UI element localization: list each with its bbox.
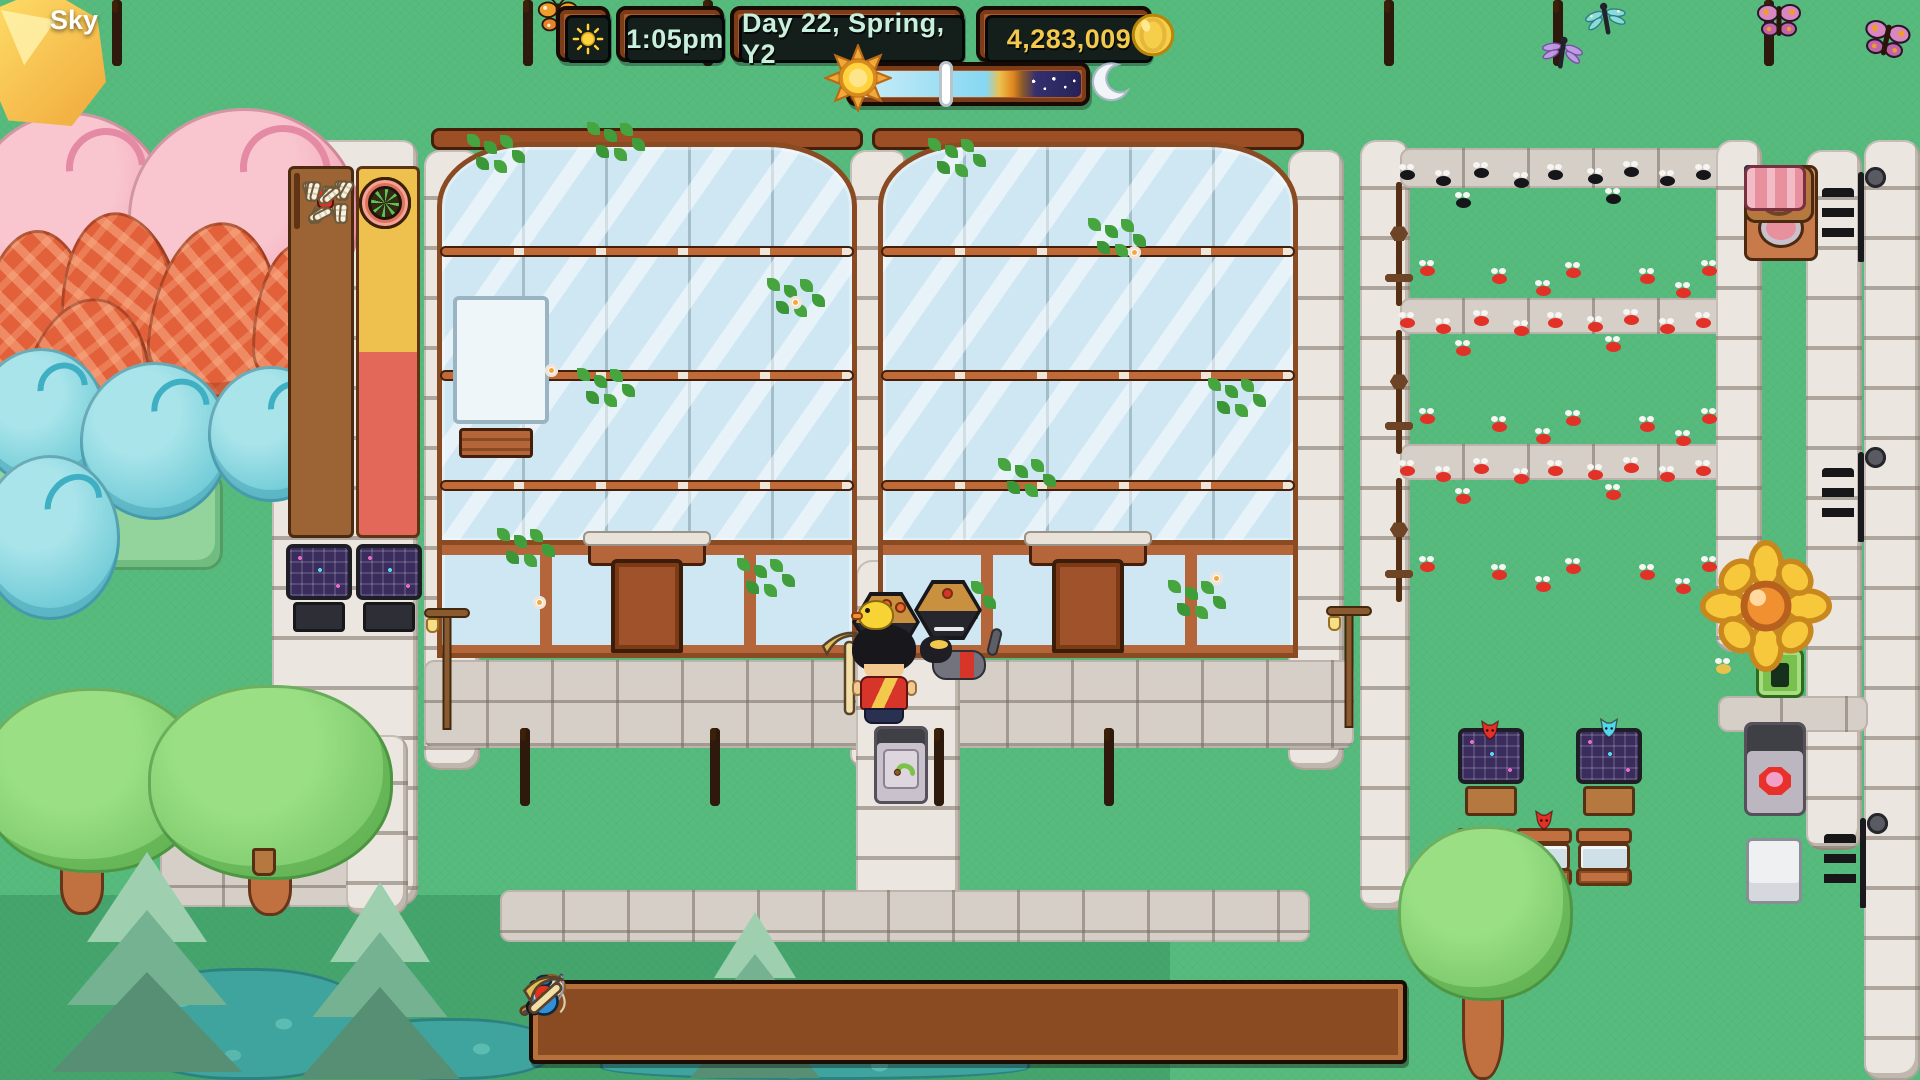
red-bee <box>1606 342 1621 352</box>
stone-path <box>500 890 1310 942</box>
roof-beam <box>440 480 854 491</box>
generator[interactable] <box>1860 818 1866 908</box>
red-bee <box>1492 274 1507 284</box>
duck-companion[interactable] <box>858 600 894 630</box>
hive-lid <box>1396 478 1402 504</box>
greenhouse-door[interactable] <box>1052 559 1124 653</box>
lamp-post <box>424 608 470 730</box>
player-body <box>860 676 908 710</box>
hive-drawer <box>1396 262 1402 306</box>
ivy-vine <box>497 528 510 541</box>
red-bee <box>1456 494 1471 504</box>
panel-screen <box>356 544 422 600</box>
gold-bee <box>1716 664 1731 674</box>
red-bee <box>1702 414 1717 424</box>
ivy-vine <box>587 122 600 135</box>
stone-column <box>1864 140 1920 1080</box>
tank-base <box>523 0 529 13</box>
day-progress-sun-icon <box>824 44 892 112</box>
roof-beam <box>881 370 1295 381</box>
pickaxe-icon <box>518 969 570 1021</box>
tank-base <box>1553 0 1559 13</box>
worm-box-column[interactable] <box>288 166 354 538</box>
red-bee <box>1420 562 1435 572</box>
pine-tree <box>300 882 460 1080</box>
hotbar[interactable] <box>529 980 1407 1064</box>
ivy-vine <box>767 278 780 291</box>
panel-base <box>363 602 415 632</box>
hive-lid <box>1396 182 1402 208</box>
white-cooler[interactable] <box>1746 838 1802 904</box>
red-bee-icon <box>1530 808 1558 834</box>
player-pants <box>864 708 904 724</box>
hive-body <box>1396 354 1402 412</box>
vine-flower <box>789 296 802 309</box>
day-progress-marker[interactable] <box>939 61 953 107</box>
red-extractor-cell[interactable] <box>359 177 411 229</box>
red-bee <box>1548 318 1563 328</box>
roof-beam <box>881 480 1295 491</box>
giant-daisy[interactable] <box>1700 540 1832 672</box>
hive-lid <box>1396 330 1402 356</box>
solar-incubator[interactable] <box>356 544 422 640</box>
hive-body <box>1396 502 1402 560</box>
red-bee <box>1514 474 1529 484</box>
red-bee <box>1420 414 1435 424</box>
moon-icon <box>1082 56 1134 112</box>
ivy-vine <box>1208 378 1221 391</box>
red-bee-icon <box>1476 718 1504 744</box>
hive-row <box>1396 182 1726 314</box>
black-bee <box>1624 167 1639 177</box>
black-bee <box>1588 174 1603 184</box>
ivy-vine <box>737 558 750 571</box>
red-bee <box>1606 490 1621 500</box>
hotbar-slot-2-pickaxe[interactable] <box>541 992 547 998</box>
tank-base <box>934 728 940 741</box>
coin-icon <box>1128 10 1178 60</box>
red-bee <box>1624 315 1639 325</box>
red-bee <box>1566 268 1581 278</box>
player-name-label: Sky <box>50 5 98 36</box>
ivy-vine <box>577 368 590 381</box>
greenhouse-door[interactable] <box>611 559 683 653</box>
black-bee <box>1436 176 1451 186</box>
red-bee <box>1640 422 1655 432</box>
money-panel: 4,283,009 <box>976 6 1152 62</box>
black-bee <box>1548 170 1563 180</box>
red-bee <box>1474 316 1489 326</box>
pine-tree <box>52 852 242 1080</box>
black-bee <box>1606 194 1621 204</box>
vine-flower <box>545 364 558 377</box>
hive-row <box>1396 330 1726 462</box>
red-bee <box>1436 324 1451 334</box>
tank-base <box>1104 728 1110 741</box>
red-bee <box>1676 584 1691 594</box>
cyan-bee-icon <box>1596 716 1622 742</box>
red-bee <box>1492 570 1507 580</box>
tank-base <box>520 728 526 741</box>
lamp-post <box>1326 606 1372 728</box>
red-bee <box>1676 436 1691 446</box>
red-bee <box>1696 466 1711 476</box>
red-bee <box>1660 472 1675 482</box>
red-bee <box>1492 422 1507 432</box>
red-bee <box>1474 464 1489 474</box>
ivy-vine <box>1168 580 1181 593</box>
critter-feeder[interactable] <box>874 726 928 804</box>
red-bee <box>1536 582 1551 592</box>
tank-base <box>710 728 716 741</box>
time-text: 1:05pm <box>625 15 725 63</box>
roof-louver <box>459 428 533 458</box>
worm-box[interactable] <box>294 173 300 229</box>
red-bee <box>1400 318 1415 328</box>
red-gem <box>1759 767 1791 795</box>
bee-tray[interactable] <box>1576 828 1632 886</box>
ivy-vine <box>1088 218 1101 231</box>
tank-base <box>112 0 118 13</box>
roof-beam <box>881 246 1295 257</box>
open-skylight[interactable] <box>453 296 549 424</box>
red-bee <box>1640 274 1655 284</box>
weather-panel <box>556 6 610 62</box>
caterpillar-icon <box>891 755 919 781</box>
processed-block <box>1744 165 1806 211</box>
solar-incubator[interactable] <box>286 544 352 640</box>
panel-base <box>1465 786 1517 816</box>
greenhouse[interactable] <box>878 128 1298 658</box>
ivy-vine <box>467 134 480 147</box>
hive-drawer <box>1396 410 1402 454</box>
black-bee <box>1696 170 1711 180</box>
red-bee <box>1588 470 1603 480</box>
vine-flower <box>1210 572 1223 585</box>
roof-beam <box>440 246 854 257</box>
red-bee <box>1588 322 1603 332</box>
butterfly-critter <box>1851 10 1920 71</box>
vine-flower <box>1128 246 1141 259</box>
red-bee <box>1566 564 1581 574</box>
vine-flower <box>533 596 546 609</box>
tank-base <box>1384 0 1390 13</box>
hive-body <box>1396 206 1402 264</box>
cat-forehead-patch <box>930 640 948 649</box>
cat-companion[interactable] <box>924 636 994 696</box>
red-bee <box>1536 286 1551 296</box>
bee-incubator[interactable] <box>1458 728 1524 824</box>
black-bee <box>1660 176 1675 186</box>
player-character[interactable] <box>844 614 924 726</box>
dragonfly-critter <box>1533 29 1591 80</box>
red-bee <box>1514 326 1529 336</box>
panel-screen <box>286 544 352 600</box>
red-bee <box>1420 266 1435 276</box>
black-bee <box>1400 170 1415 180</box>
red-bee <box>1536 434 1551 444</box>
ivy-vine <box>928 138 941 151</box>
red-bee <box>1456 346 1471 356</box>
red-bee <box>1702 266 1717 276</box>
red-bee <box>1660 324 1675 334</box>
generator[interactable] <box>1858 452 1864 542</box>
green-tree-canopy <box>1398 826 1573 1001</box>
extractor-column[interactable] <box>356 166 420 538</box>
ivy-vine <box>998 458 1011 471</box>
panel-base <box>1583 786 1635 816</box>
black-bee <box>1474 168 1489 178</box>
sap-bucket[interactable] <box>252 848 276 876</box>
red-bee <box>1624 463 1639 473</box>
hive-row <box>1396 478 1726 610</box>
sun-icon <box>571 22 605 56</box>
bee-incubator[interactable] <box>1576 728 1642 824</box>
generator[interactable] <box>1858 172 1864 262</box>
black-bee <box>1514 178 1529 188</box>
hive-drawer <box>1396 558 1402 602</box>
red-bee <box>1696 318 1711 328</box>
red-bee <box>1400 466 1415 476</box>
black-bee <box>1456 198 1471 208</box>
red-bee <box>1566 416 1581 426</box>
game-viewport: Sky 1:05pm Day 22, Spring, Y2 4,283,009 <box>0 0 1920 1080</box>
butterfly-critter <box>1750 0 1808 46</box>
red-bee <box>1548 466 1563 476</box>
red-bee <box>1640 570 1655 580</box>
clock-panel: 1:05pm <box>616 6 724 62</box>
greenhouse[interactable] <box>437 128 857 658</box>
red-bee <box>1676 288 1691 298</box>
red-bee <box>1436 472 1451 482</box>
panel-base <box>293 602 345 632</box>
gem-dispenser[interactable] <box>1744 722 1806 816</box>
